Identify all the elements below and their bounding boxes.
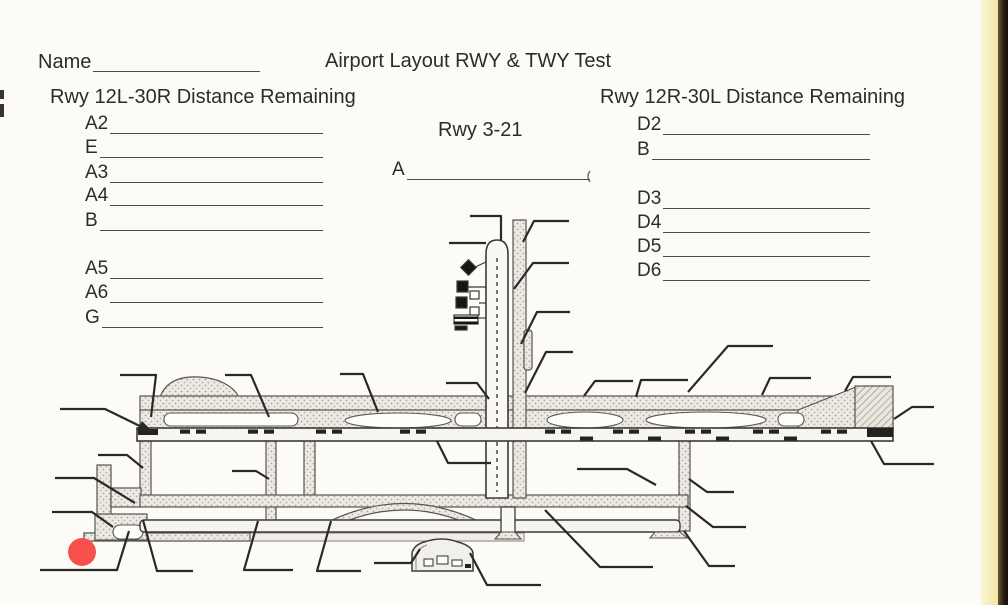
building-cluster [454, 260, 486, 330]
middle-section-heading: Rwy 3-21 [438, 119, 522, 142]
answer-row-b-right: B [637, 138, 870, 160]
answer-label: D6 [637, 261, 661, 281]
answer-row-g: G [85, 306, 323, 328]
red-marker-dot [68, 538, 96, 566]
answer-blank [663, 236, 870, 257]
answer-label: A [392, 160, 405, 180]
answer-label: B [85, 211, 98, 231]
runway-12L-30R [137, 428, 893, 441]
right-section-heading: Rwy 12R-30L Distance Remaining [600, 86, 905, 109]
answer-label: E [85, 138, 98, 158]
answer-row-a6: A6 [85, 281, 323, 303]
answer-label: A5 [85, 259, 108, 279]
answer-row-d4: D4 [637, 211, 870, 233]
page-edge-yellow [981, 0, 998, 605]
answer-label: D3 [637, 189, 661, 209]
answer-blank [663, 114, 870, 135]
answer-blank [407, 159, 590, 180]
answer-blank [110, 113, 323, 134]
answer-blank [663, 212, 870, 233]
answer-label: D2 [637, 115, 661, 135]
answer-label: D5 [637, 237, 661, 257]
answer-blank [652, 139, 870, 160]
name-label: Name [38, 52, 91, 72]
answer-row-e: E [85, 136, 323, 158]
answer-label: G [85, 308, 100, 328]
answer-blank [110, 185, 323, 206]
answer-label: A3 [85, 163, 108, 183]
answer-row-a4: A4 [85, 184, 323, 206]
answer-row-d6: D6 [637, 259, 870, 281]
answer-blank [100, 210, 323, 231]
left-section-heading: Rwy 12L-30R Distance Remaining [50, 86, 356, 109]
answer-label: A2 [85, 114, 108, 134]
answer-label: D4 [637, 213, 661, 233]
name-row: Name [38, 50, 260, 72]
answer-blank [100, 137, 323, 158]
answer-blank [110, 162, 323, 183]
answer-row-a3: A3 [85, 161, 323, 183]
scanned-worksheet: { "header": { "name_label": "Name", "tit… [0, 0, 1008, 605]
answer-label: A4 [85, 186, 108, 206]
answer-blank [663, 188, 870, 209]
answer-row-d3: D3 [637, 187, 870, 209]
terminal-building [412, 539, 473, 571]
answer-row-a5: A5 [85, 257, 323, 279]
answer-row-a2: A2 [85, 112, 323, 134]
answer-row-a-middle: A [392, 158, 590, 180]
answer-row-d2: D2 [637, 113, 870, 135]
name-blank [93, 51, 260, 72]
answer-blank [663, 260, 870, 281]
runway-3-21 [486, 220, 532, 498]
page-edge-dark [998, 0, 1008, 605]
answer-row-b-left: B [85, 209, 323, 231]
answer-blank [110, 258, 323, 279]
answer-label: B [637, 140, 650, 160]
page-title: Airport Layout RWY & TWY Test [325, 50, 611, 73]
answer-row-d5: D5 [637, 235, 870, 257]
answer-blank [110, 282, 323, 303]
answer-label: A6 [85, 283, 108, 303]
answer-blank [102, 307, 323, 328]
